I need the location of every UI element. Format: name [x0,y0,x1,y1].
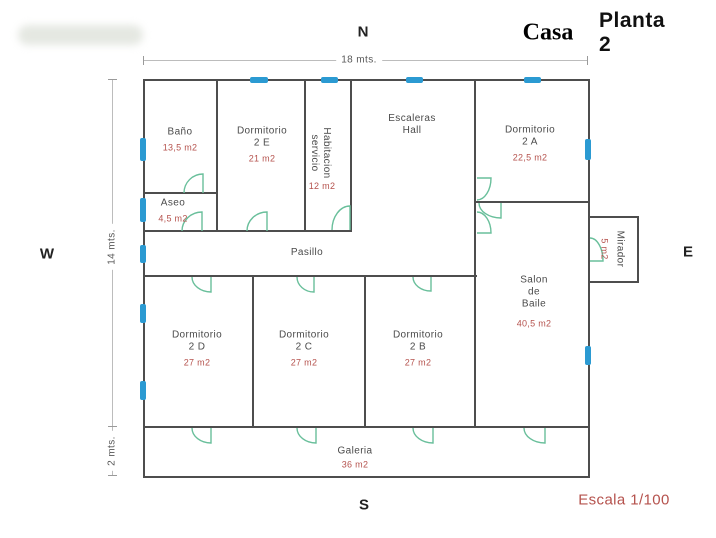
room-label-habitacion-servicio: Habitacionservicio [308,127,332,178]
room-area: 12 m2 [309,180,336,192]
room-area: 36 m2 [337,459,372,471]
wall-segment [143,79,590,81]
room-name: Dormitorio [505,125,555,137]
room-name: Mirador [614,231,626,268]
room-area: 22,5 m2 [505,152,555,164]
window-marker [585,139,591,160]
room-name: Salon [517,275,552,287]
room-label-pasillo: Pasillo [291,247,323,259]
room-name: 2 C [279,342,329,354]
room-label-dormitorio-2e: Dormitorio2 E21 m2 [237,126,287,165]
door-arc [192,277,211,292]
room-name: Aseo [158,198,187,210]
window-marker [140,304,146,323]
door-arc [247,212,267,231]
wall-segment [474,275,476,428]
room-area: 27 m2 [172,357,222,369]
room-area-habitacion-servicio: 12 m2 [309,180,336,192]
floor-plan-page: Casa Planta 2 N S E W 18 mts. 14 mts. 2 … [0,0,716,538]
room-name: 2 D [172,342,222,354]
room-label-dormitorio-2b: Dormitorio2 B27 m2 [393,330,443,369]
door-arc [477,212,491,233]
room-area: 5 m2 [599,231,611,268]
room-name: Pasillo [291,247,323,259]
room-label-dormitorio-2d: Dormitorio2 D27 m2 [172,330,222,369]
room-name: Dormitorio [172,330,222,342]
room-name: Dormitorio [279,330,329,342]
room-label-dormitorio-2a: Dormitorio2 A22,5 m2 [505,125,555,164]
wall-segment [364,275,366,428]
room-area: 27 m2 [393,357,443,369]
room-name: Galeria [337,446,372,458]
window-marker [140,198,146,222]
door-arc [413,428,433,443]
room-area: 40,5 m2 [517,318,552,330]
room-name: Escaleras [388,113,436,125]
wall-segment [143,192,218,194]
room-name: 2 E [237,138,287,150]
floor-plan-drawing: Baño13,5 m2Dormitorio2 E21 m2Habitacions… [0,0,716,538]
door-arc [477,178,491,200]
wall-segment [589,216,638,218]
window-marker [585,346,591,365]
wall-segment [637,216,639,283]
door-arc [192,428,211,443]
window-marker [140,381,146,400]
window-marker [250,77,268,83]
door-arc [332,206,350,230]
door-arc [413,277,431,291]
room-area: 13,5 m2 [163,142,198,154]
room-name: 2 B [393,342,443,354]
room-name: de [517,287,552,299]
room-label-mirador: Mirador5 m2 [599,231,626,268]
window-marker [406,77,423,83]
room-label-escaleras-hall: EscalerasHall [388,113,436,137]
room-name: Dormitorio [237,126,287,138]
door-arc [184,174,203,193]
wall-segment [589,281,638,283]
window-marker [321,77,338,83]
room-label-salon-de-baile: SalondeBaile40,5 m2 [517,275,552,330]
wall-segment [252,275,254,428]
window-marker [140,245,146,263]
room-name: Baño [163,127,198,139]
door-arc [297,428,316,443]
room-name: Dormitorio [393,330,443,342]
room-area: 4,5 m2 [158,213,187,225]
room-name: Baile [517,299,552,311]
room-name: Habitacion [320,127,332,178]
door-arc [524,428,545,443]
room-name: 2 A [505,137,555,149]
room-name: servicio [308,127,320,178]
wall-segment [143,476,590,478]
room-label-dormitorio-2c: Dormitorio2 C27 m2 [279,330,329,369]
room-area: 27 m2 [279,357,329,369]
wall-segment [304,79,306,232]
wall-segment [216,79,218,232]
door-arc [297,277,314,292]
wall-segment [474,79,476,277]
window-marker [524,77,541,83]
room-label-galeria: Galeria36 m2 [337,446,372,471]
room-label-bano: Baño13,5 m2 [163,127,198,154]
room-label-aseo: Aseo4,5 m2 [158,198,187,225]
room-area: 21 m2 [237,153,287,165]
window-marker [140,138,146,161]
room-name: Hall [388,125,436,137]
